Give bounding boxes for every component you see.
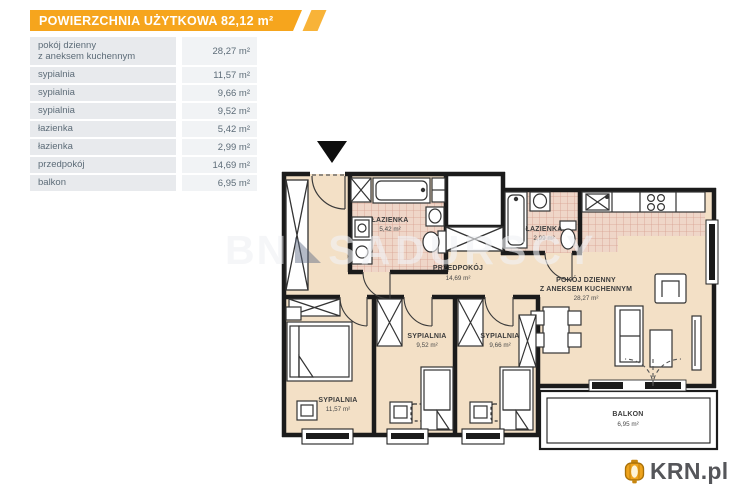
bedroom-windows [302,429,504,444]
side-cabinet [432,178,445,202]
kitchen [582,192,705,212]
nightstand [297,401,317,420]
sink-icon [426,207,444,226]
window-icon [387,429,428,444]
page: POWIERZCHNIA UŻYTKOWA 82,12 m² pokój dzi… [0,0,740,499]
bathtub-icon [373,178,430,203]
window-icon [302,429,353,444]
room-label-bathroom1: ŁAZIENKA [372,217,409,224]
hall-wardrobe-left [286,180,308,290]
room-label-living-2: Z ANEKSEM KUCHENNYM [540,286,632,293]
kitchen-sink-icon [586,194,609,210]
room-label-living-1: POKÓJ DZIENNY [556,275,616,284]
toilet-icon [423,231,446,253]
room-area-bedroom1157: 11,57 m² [326,406,350,413]
living-side-window [706,220,718,284]
room-label-bathroom2: ŁAZIENKA [526,226,563,233]
window-icon [462,429,504,444]
room-label-hall: PRZEDPOKÓJ [433,263,483,272]
floor-plan: ŁAZIENKA 5,42 m² ŁAZIENKA 2,99 m² PRZEDP… [0,0,740,499]
balcony [540,391,717,449]
dryer-icon [352,240,372,264]
entrance-marker-icon [317,141,347,163]
room-label-bedroom1157: SYPIALNIA [318,397,357,404]
bathroom-cabinet [351,178,371,202]
room-label-bedroom952: SYPIALNIA [407,333,446,340]
single-bed [500,367,533,430]
room-area-balcony: 6,95 m² [617,421,638,428]
double-bed [287,322,352,381]
room-area-bathroom2: 2,99 m² [533,235,554,242]
krn-logo: KRN.pl [621,458,728,485]
washer-icon [352,217,372,240]
room-area-bedroom966: 9,66 m² [489,342,510,349]
room-area-bathroom1: 5,42 m² [379,226,400,233]
armchair [655,274,686,303]
shaft-niche [446,175,503,227]
tv-cabinet [692,316,701,370]
room-area-hall: 14,69 m² [446,275,471,282]
room-label-balcony: BALKON [612,411,643,418]
desk [390,402,412,423]
lantern-icon [621,458,648,485]
krn-logo-text: KRN.pl [650,458,728,485]
sofa [615,306,643,366]
wardrobe [377,299,402,346]
nightstand [286,307,301,320]
room-area-bedroom952: 9,52 m² [416,342,437,349]
wardrobe [458,299,483,346]
room-label-bedroom966: SYPIALNIA [480,333,519,340]
wardrobe [519,315,536,367]
hall-wardrobe-wide [446,227,503,251]
single-bed [421,367,453,430]
bathtub-icon [505,192,527,248]
sink-icon [530,192,550,211]
desk [470,402,492,423]
room-area-living: 28,27 m² [574,295,599,302]
